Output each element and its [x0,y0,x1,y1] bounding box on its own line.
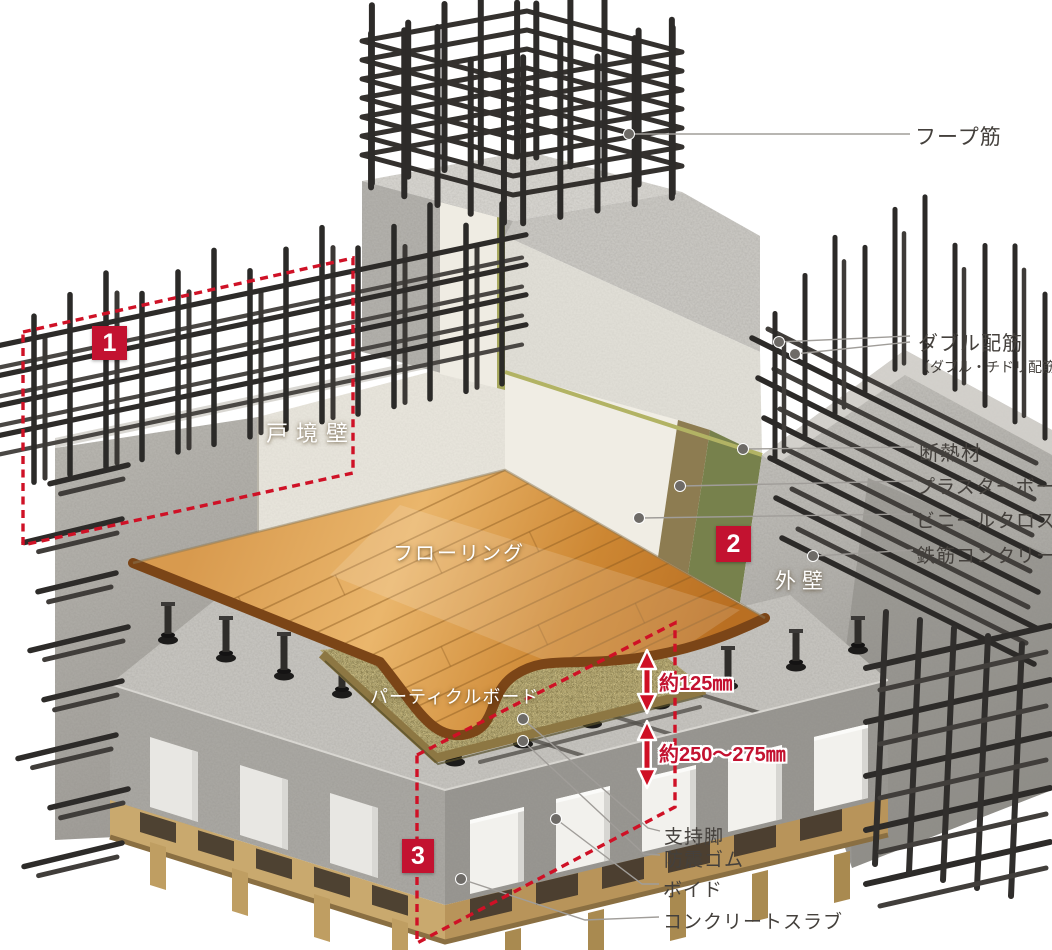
construction-cutaway-diagram: 1 2 3 フープ筋 ダブル配筋 （ダブル・チドリ配筋） 断熱材 プラスターボー… [0,0,1052,950]
section-marker-1: 1 [92,326,127,360]
callout-double-rebar-sub: （ダブル・チドリ配筋） [916,357,1052,377]
scene-label-exterior-wall: 外壁 [775,565,829,595]
callout-insulation: 断熱材 [919,437,982,466]
callout-void: ボイド [663,875,723,902]
callout-double-rebar: ダブル配筋 [918,327,1023,356]
callout-plasterboard: プラスターボード [916,472,1052,499]
dimension-250-275mm: 約250〜275㎜ [659,738,786,767]
callout-hoop-rebar: フープ筋 [915,121,1002,151]
callout-concrete-slab: コンクリートスラブ [663,907,843,934]
scene-label-particle-board: パーティクルボード [370,683,539,709]
scene-illustration [0,0,1052,950]
section-marker-2: 2 [716,526,751,562]
callout-reinforced-concrete: 鉄筋コンクリート [916,541,1052,568]
scene-label-flooring: フローリング [393,537,525,566]
scene-label-party-wall: 戸境壁 [266,416,356,448]
callout-vinyl-cloth: ビニールクロス [916,506,1052,533]
section-marker-3: 3 [402,839,434,873]
dimension-125mm: 約125㎜ [659,667,732,696]
callout-vibration-rubber: 防震ゴム [664,845,744,872]
